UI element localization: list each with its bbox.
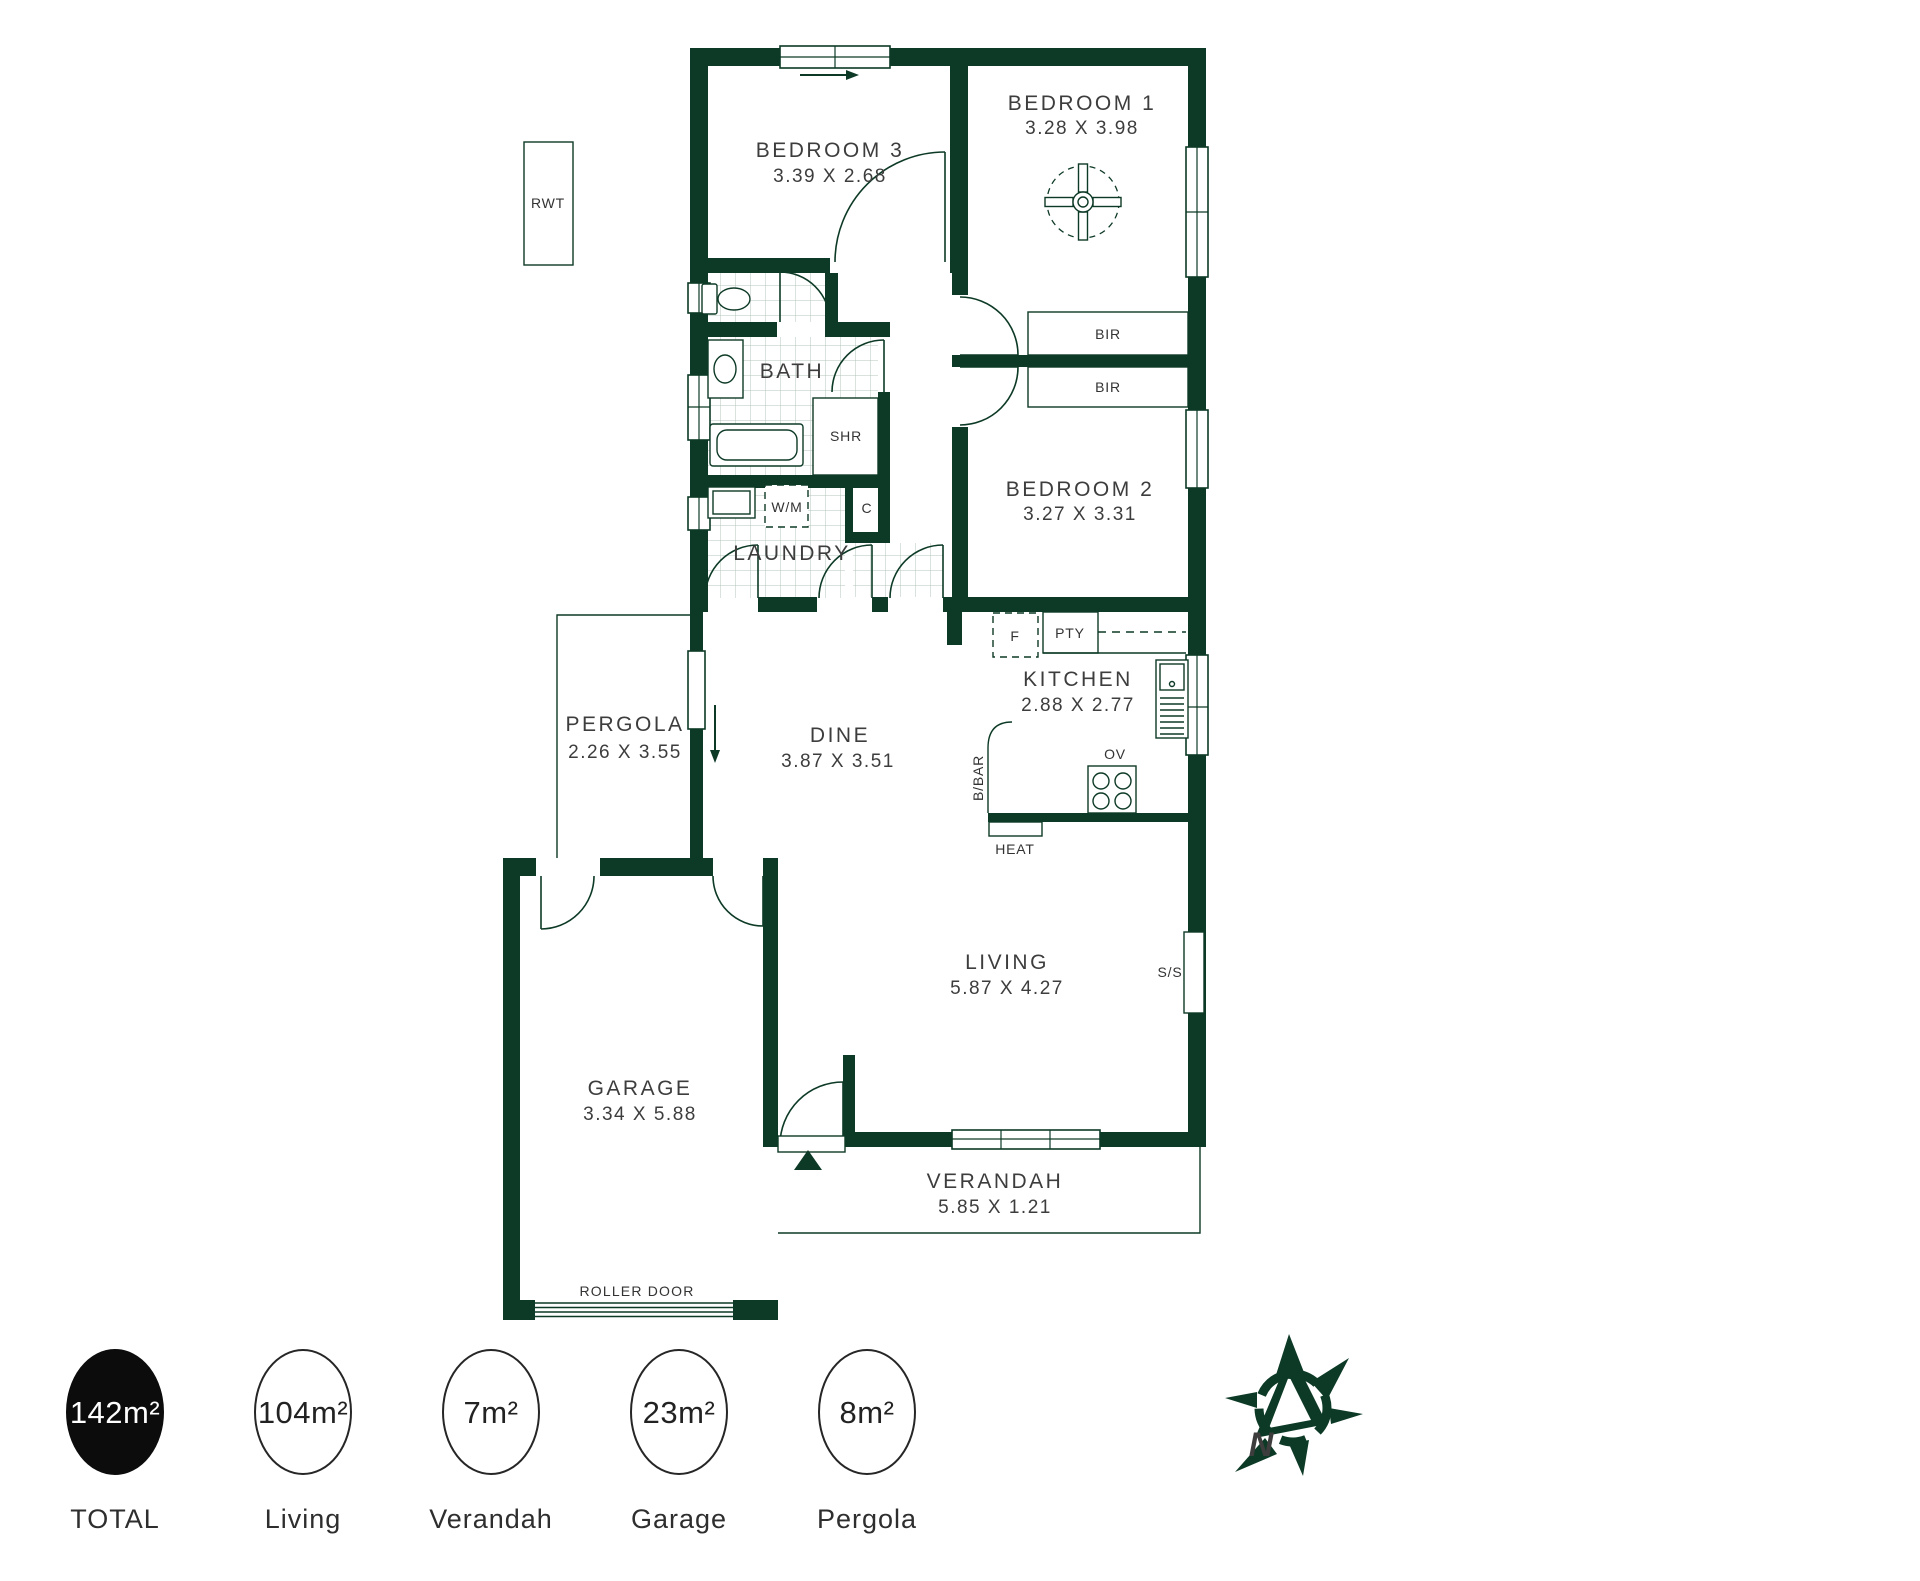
- area-summary: 142m² TOTAL 104m² Living 7m² Verandah 23…: [67, 1350, 917, 1534]
- door-front-entry: [778, 1082, 845, 1170]
- living-dims: 5.87 X 4.27: [950, 978, 1064, 999]
- garage-area-value: 23m²: [643, 1395, 716, 1430]
- wall-segment: [825, 273, 838, 322]
- area-summary-living: 104m² Living: [255, 1350, 351, 1534]
- pergola-dims: 2.26 X 3.55: [568, 742, 682, 763]
- wall-segment: [845, 488, 853, 532]
- breakfast-bar-label: B/BAR: [970, 755, 986, 801]
- living-label: LIVING: [965, 951, 1049, 974]
- wall-segment: [733, 1300, 778, 1320]
- side-server-unit: [1184, 932, 1204, 1013]
- laundry-trough: [708, 487, 755, 518]
- wall-segment: [872, 597, 888, 612]
- fixtures: [524, 70, 1204, 1317]
- verandah-dims: 5.85 X 1.21: [938, 1197, 1052, 1218]
- shr-label: SHR: [830, 428, 862, 444]
- wall-segment: [690, 322, 777, 337]
- bedroom2-dims: 3.27 X 3.31: [1023, 504, 1137, 525]
- cooktop: [1088, 766, 1136, 813]
- vanity-basin: [708, 340, 743, 398]
- door-bedroom2: [960, 367, 1018, 425]
- wall-segment: [878, 392, 890, 543]
- wall-segment: [950, 48, 968, 273]
- oven-label: OV: [1104, 746, 1126, 762]
- area-summary-total: 142m² TOTAL: [67, 1350, 163, 1534]
- pergola-area-caption: Pergola: [817, 1504, 917, 1534]
- pergola-area-value: 8m²: [840, 1395, 895, 1430]
- wall-segment: [825, 322, 890, 337]
- bir2-label: BIR: [1095, 379, 1121, 395]
- room-labels: RWT BEDROOM 3 3.39 X 2.68 BEDROOM 1 3.28…: [531, 92, 1183, 1299]
- bir1-label: BIR: [1095, 326, 1121, 342]
- window: [1186, 410, 1208, 488]
- wall-segment: [952, 355, 968, 367]
- floorplan-page: RWT BEDROOM 3 3.39 X 2.68 BEDROOM 1 3.28…: [0, 0, 1920, 1581]
- door-pergola-garage: [541, 876, 594, 929]
- roller-door-hatch: [535, 1303, 733, 1317]
- heater-unit: [989, 822, 1042, 836]
- bath-label: BATH: [760, 360, 824, 383]
- wall-segment: [503, 858, 520, 1320]
- pergola-label: PERGOLA: [565, 713, 684, 736]
- wall-segment: [690, 727, 703, 875]
- bedroom3-label: BEDROOM 3: [756, 139, 905, 162]
- heater-label: HEAT: [995, 841, 1035, 857]
- window: [1186, 655, 1208, 755]
- bedroom1-label: BEDROOM 1: [1008, 92, 1157, 115]
- window: [688, 375, 710, 440]
- ceiling-fan-icon: [1045, 164, 1121, 240]
- wall-segment: [988, 813, 1206, 822]
- bathtub: [710, 424, 803, 466]
- pantry-label: PTY: [1055, 625, 1085, 641]
- garage-label: GARAGE: [588, 1077, 693, 1100]
- roller-door-label: ROLLER DOOR: [579, 1283, 694, 1299]
- total-area-caption: TOTAL: [70, 1504, 160, 1534]
- entry-direction-arrow: [710, 705, 720, 763]
- window: [1186, 147, 1208, 277]
- window: [688, 497, 710, 530]
- wall-segment: [690, 48, 1206, 66]
- kitchen-label: KITCHEN: [1023, 668, 1133, 691]
- window: [952, 1130, 1100, 1149]
- total-area-value: 142m²: [70, 1395, 160, 1430]
- wall-segment: [763, 858, 778, 876]
- compass-north-letter: N: [1249, 1426, 1275, 1464]
- dine-dims: 3.87 X 3.51: [781, 751, 895, 772]
- wall-segment: [968, 355, 1188, 367]
- wall-segment: [952, 427, 968, 597]
- wall-segment: [843, 1055, 855, 1132]
- breakfast-bar-bench: [988, 722, 1012, 813]
- kitchen-dims: 2.88 X 2.77: [1021, 695, 1135, 716]
- kitchen-sink: [1156, 660, 1188, 738]
- wall-segment: [943, 597, 1188, 612]
- wm-label: W/M: [771, 499, 802, 515]
- front-door-slab: [778, 1136, 845, 1152]
- garage-area-caption: Garage: [631, 1504, 727, 1534]
- wall-segment: [952, 273, 968, 295]
- area-summary-pergola: 8m² Pergola: [817, 1350, 917, 1534]
- entry-opening: [688, 651, 705, 729]
- side-server-label: S/S: [1158, 964, 1183, 980]
- wall-segment: [503, 1300, 535, 1320]
- bedroom2-label: BEDROOM 2: [1006, 478, 1155, 501]
- wall-segment: [600, 858, 713, 876]
- rwt-label: RWT: [531, 195, 565, 211]
- verandah-label: VERANDAH: [927, 1170, 1064, 1193]
- area-summary-garage: 23m² Garage: [631, 1350, 727, 1534]
- dine-label: DINE: [810, 724, 870, 747]
- door-garage-internal: [713, 876, 763, 926]
- verandah-area-value: 7m²: [464, 1395, 519, 1430]
- area-summary-verandah: 7m² Verandah: [429, 1350, 553, 1534]
- door-bedroom1: [960, 297, 1018, 355]
- entry-marker-triangle: [794, 1150, 822, 1170]
- laundry-label: LAUNDRY: [733, 542, 850, 565]
- wall-segment: [947, 612, 962, 645]
- wall-segment: [758, 597, 817, 612]
- floorplan-svg: RWT BEDROOM 3 3.39 X 2.68 BEDROOM 1 3.28…: [0, 0, 1920, 1581]
- living-area-value: 104m²: [258, 1395, 348, 1430]
- window-direction-arrow: [800, 70, 859, 80]
- verandah-area-caption: Verandah: [429, 1504, 553, 1534]
- wall-segment: [845, 532, 890, 543]
- garage-dims: 3.34 X 5.88: [583, 1104, 697, 1125]
- cupboard-label: C: [862, 500, 873, 516]
- doors: [541, 152, 1018, 1170]
- living-area-caption: Living: [265, 1504, 342, 1534]
- wall-segment: [763, 876, 778, 1147]
- compass-icon: N: [1225, 1334, 1363, 1476]
- window: [780, 46, 890, 68]
- bedroom1-dims: 3.28 X 3.98: [1025, 118, 1139, 139]
- bedroom3-dims: 3.39 X 2.68: [773, 166, 887, 187]
- wall-segment: [690, 612, 703, 653]
- wall-segment: [690, 258, 830, 273]
- pergola-outline: [557, 615, 690, 858]
- fridge-label: F: [1010, 628, 1019, 644]
